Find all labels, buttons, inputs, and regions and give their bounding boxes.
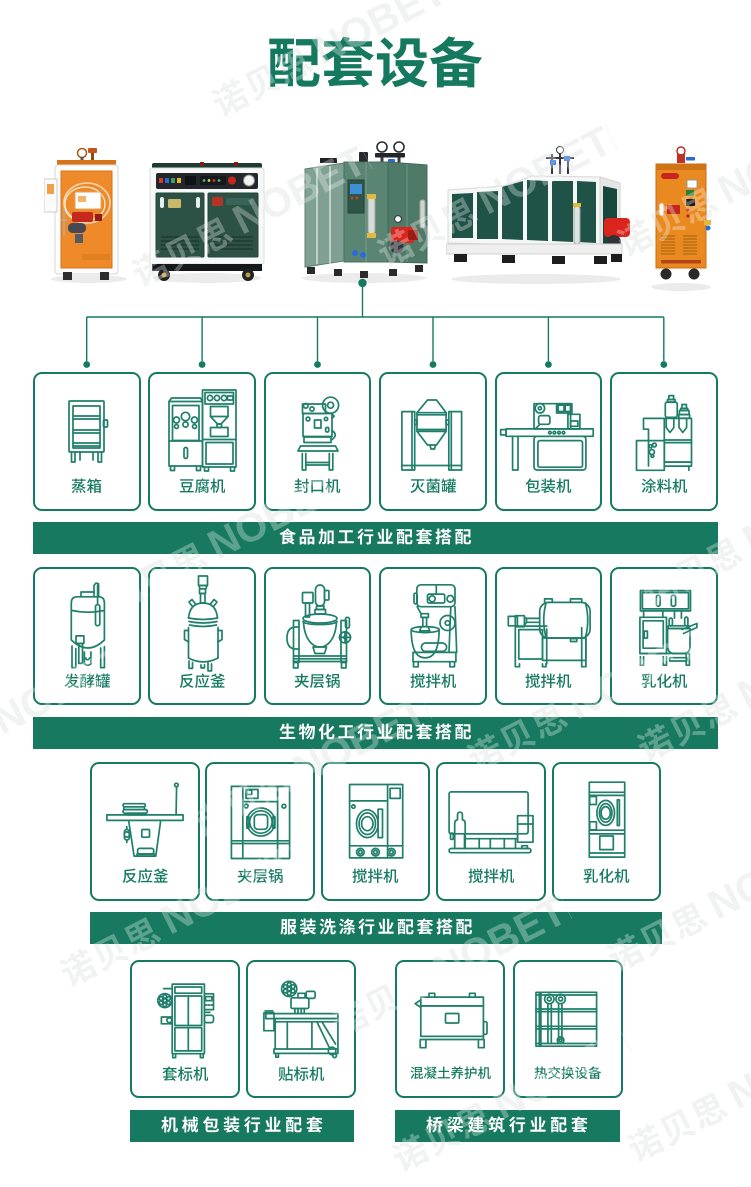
svg-text:NOBETH: NOBETH xyxy=(710,106,751,213)
svg-text:NOBETH: NOBETH xyxy=(700,821,751,928)
svg-text:NOBETH: NOBETH xyxy=(735,456,751,563)
svg-text:NOBETH: NOBETH xyxy=(730,611,751,718)
svg-text:NOBETH: NOBETH xyxy=(720,1011,751,1118)
